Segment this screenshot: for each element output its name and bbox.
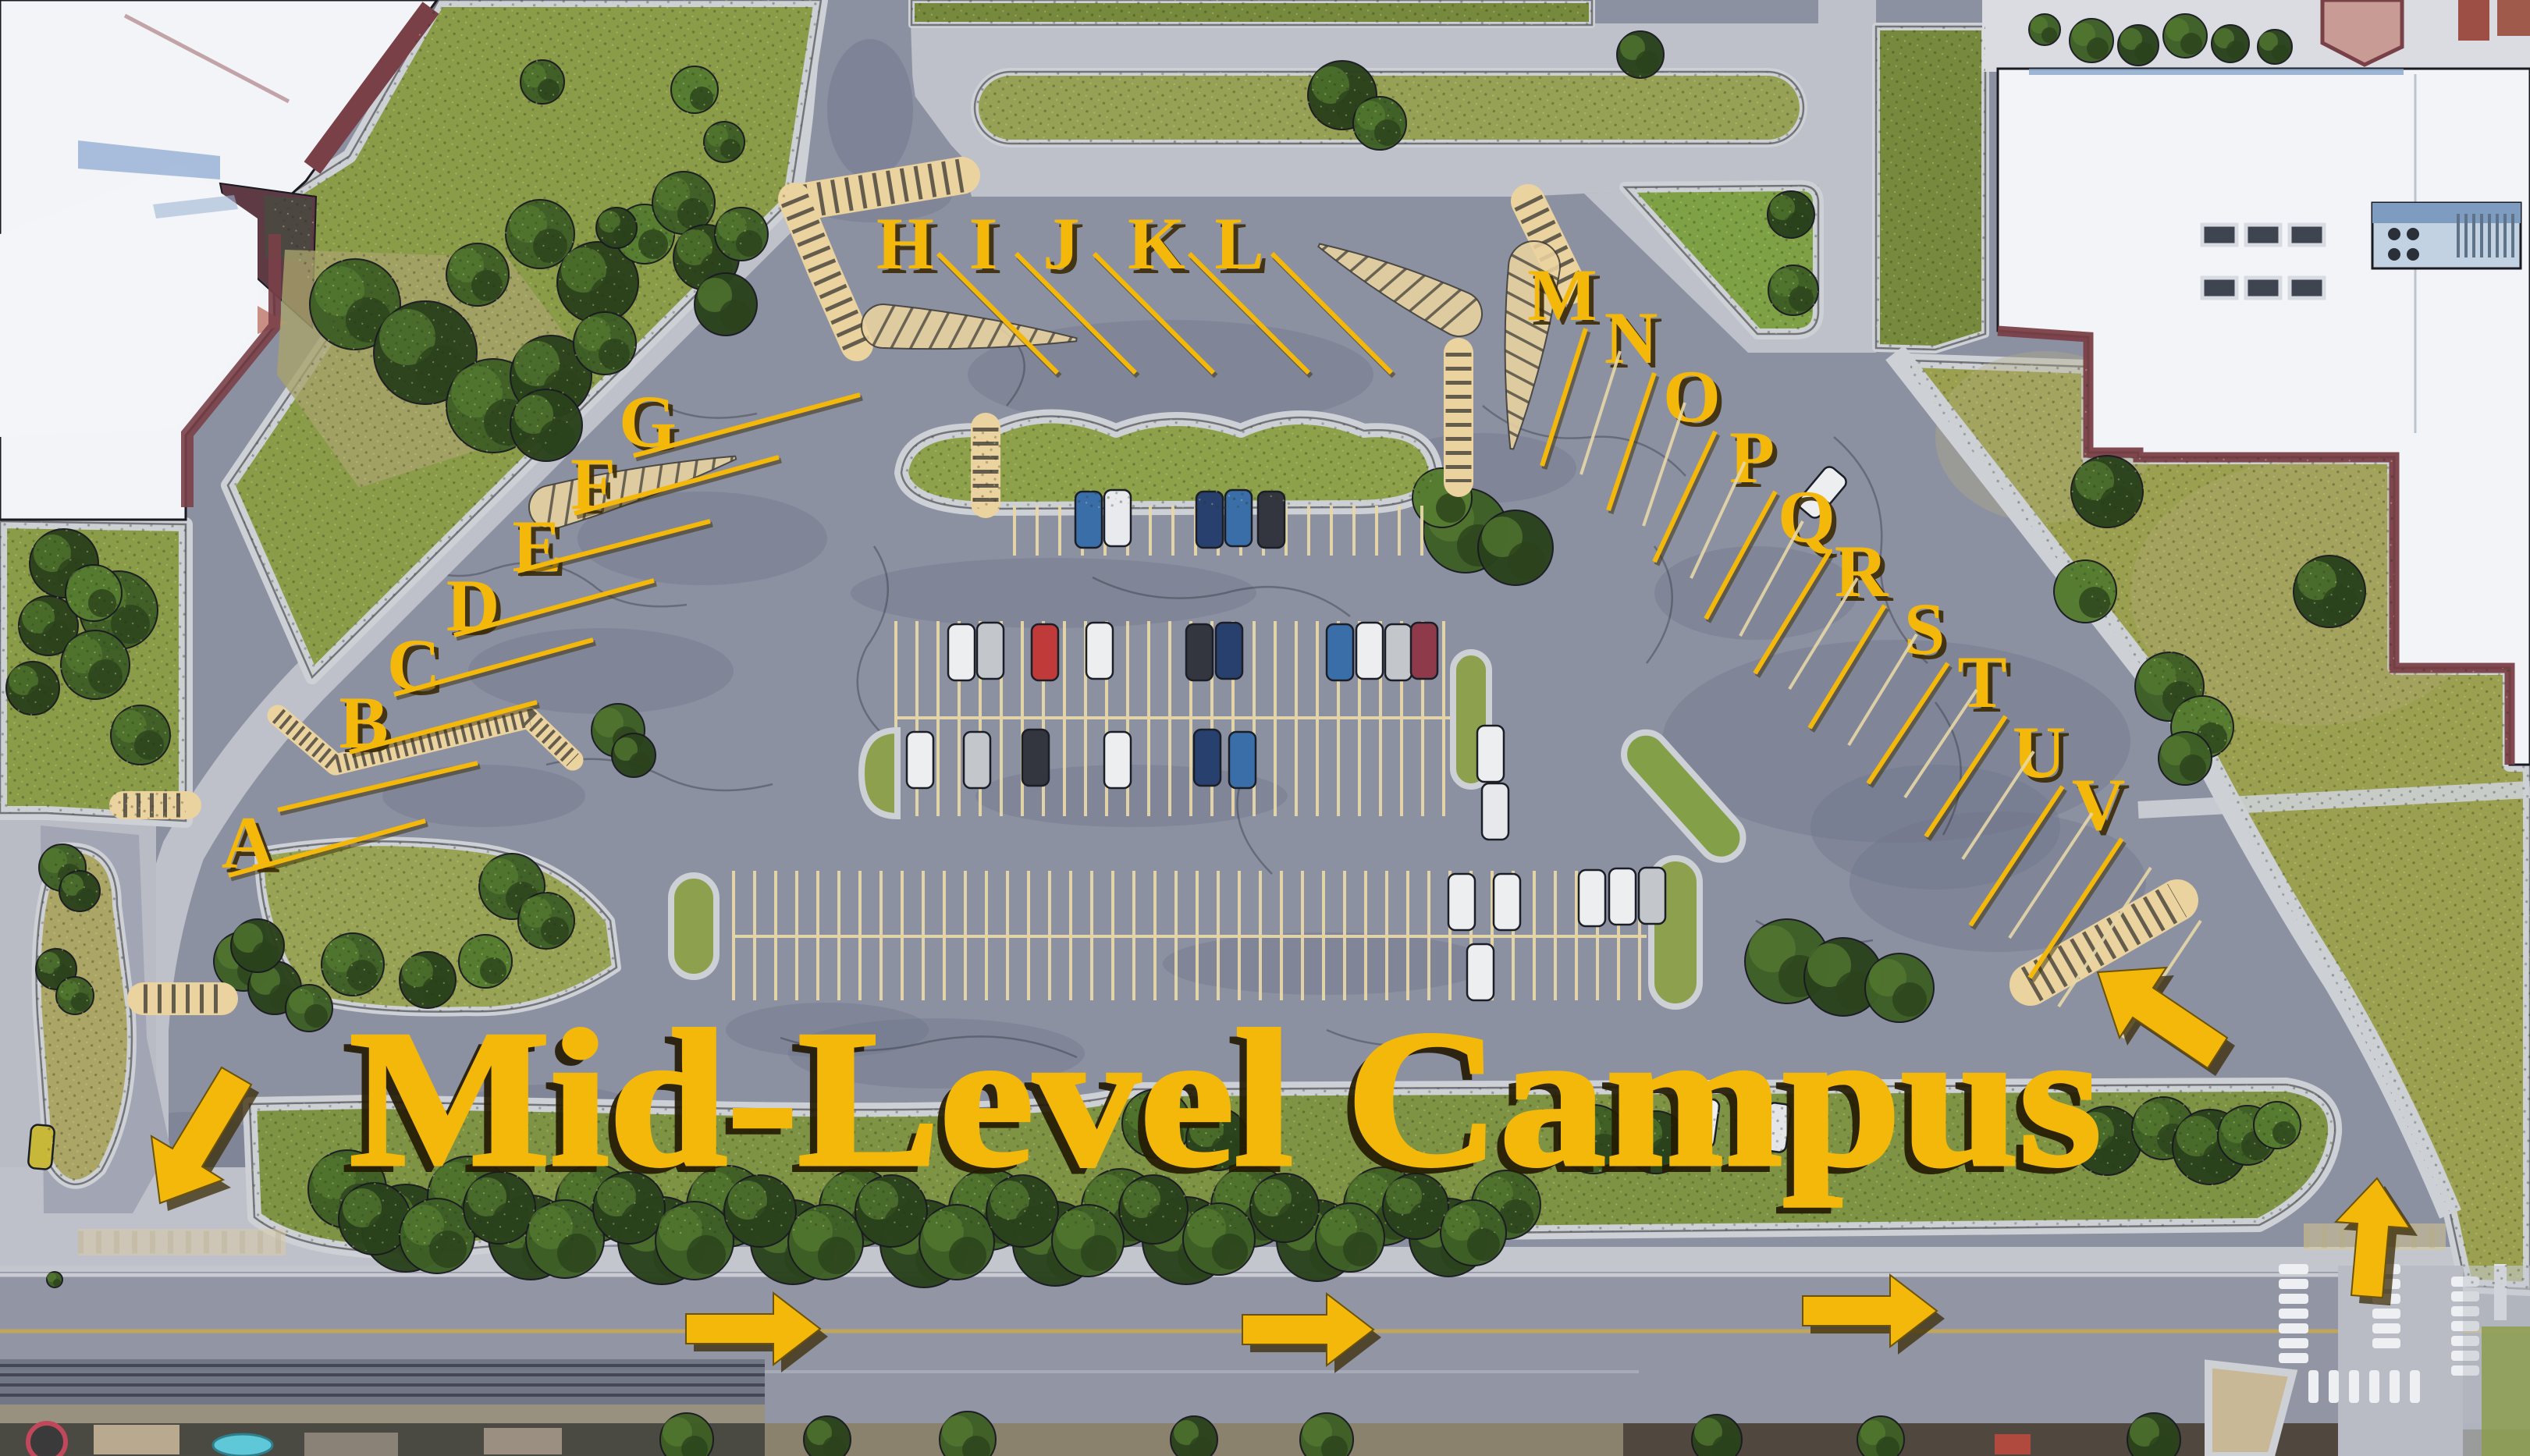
svg-text:T: T bbox=[1957, 641, 2006, 723]
svg-text:H: H bbox=[876, 202, 934, 285]
svg-text:O: O bbox=[1663, 355, 1721, 438]
svg-text:E: E bbox=[512, 505, 561, 588]
svg-text:S: S bbox=[1904, 588, 1945, 670]
svg-text:Q: Q bbox=[1778, 475, 1835, 558]
svg-text:L: L bbox=[1214, 202, 1263, 285]
svg-text:M: M bbox=[1527, 254, 1597, 336]
svg-text:P: P bbox=[1729, 416, 1775, 499]
svg-text:I: I bbox=[969, 202, 998, 285]
svg-text:N: N bbox=[1604, 297, 1658, 379]
svg-text:Mid-Level Campus: Mid-Level Campus bbox=[350, 991, 2102, 1207]
svg-text:K: K bbox=[1128, 202, 1185, 285]
svg-text:J: J bbox=[1043, 202, 1080, 285]
svg-text:U: U bbox=[2013, 711, 2066, 794]
